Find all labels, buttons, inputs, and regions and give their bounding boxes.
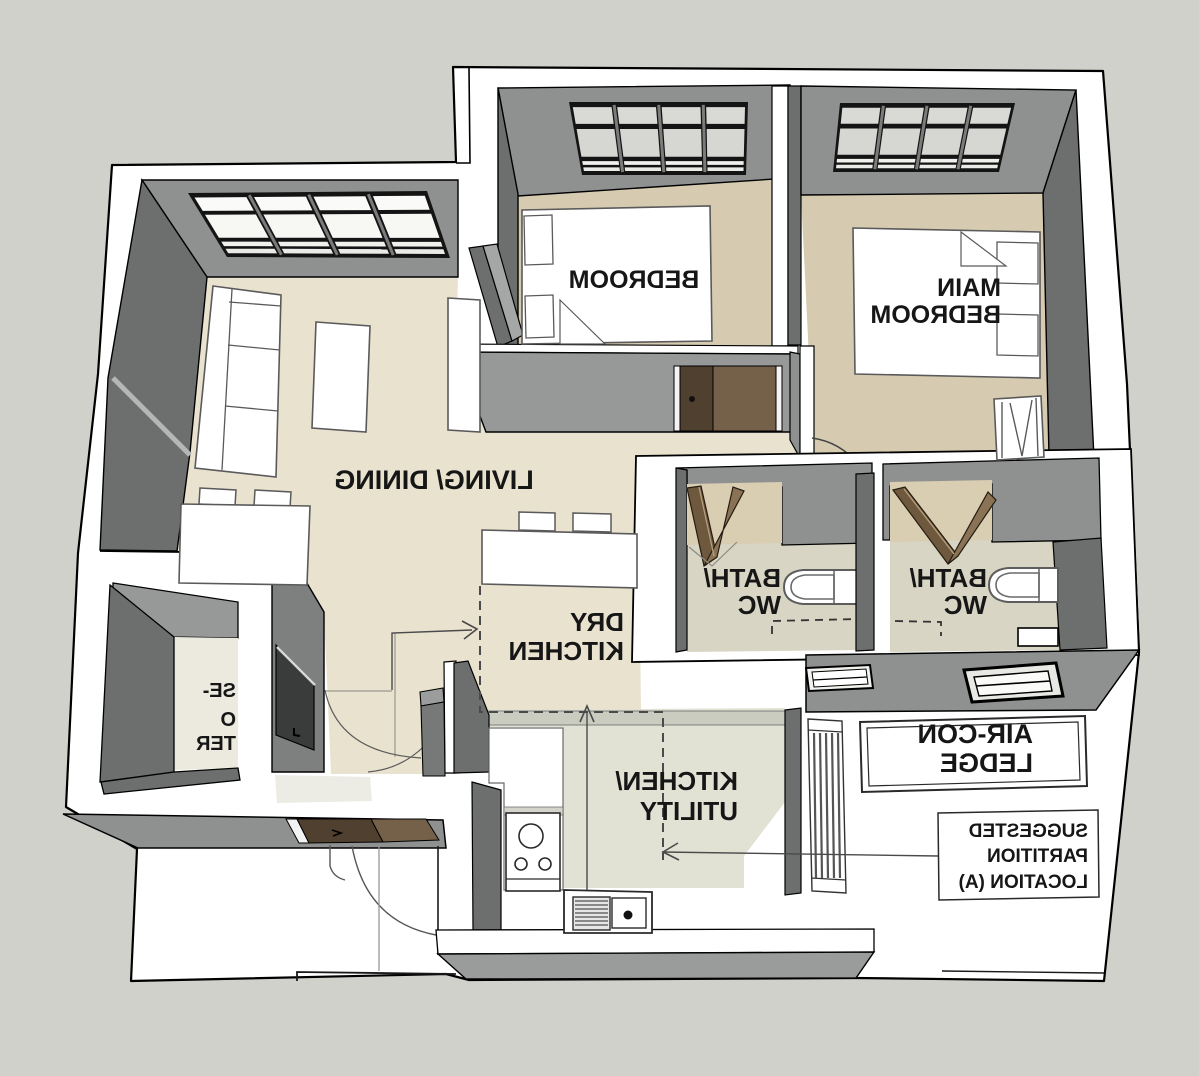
svg-text:LEDGE: LEDGE [940,748,1033,778]
svg-text:UTILITY: UTILITY [640,796,738,826]
svg-text:BEDROOM: BEDROOM [870,301,1001,329]
svg-text:AIR-CON: AIR-CON [918,719,1034,749]
svg-text:LOCATION (A): LOCATION (A) [959,872,1088,893]
svg-text:PARTITION: PARTITION [987,846,1088,867]
svg-text:BATH/: BATH/ [703,563,781,593]
svg-text:BATH/: BATH/ [909,563,987,593]
svg-text:KITCHEN/: KITCHEN/ [615,766,738,796]
svg-text:DRY: DRY [570,607,624,637]
svg-text:KITCHEN: KITCHEN [508,636,624,666]
svg-text:LIVING/ DINING: LIVING/ DINING [334,465,534,495]
svg-text:O: O [220,709,236,731]
svg-text:BEDROOM: BEDROOM [569,266,700,294]
svg-text:SUGGESTED: SUGGESTED [969,821,1088,842]
svg-text:WC: WC [737,590,781,620]
svg-text:MAIN: MAIN [937,274,1001,302]
svg-text:WC: WC [943,590,987,620]
svg-text:SE-: SE- [203,680,236,702]
svg-text:TER: TER [195,733,236,755]
